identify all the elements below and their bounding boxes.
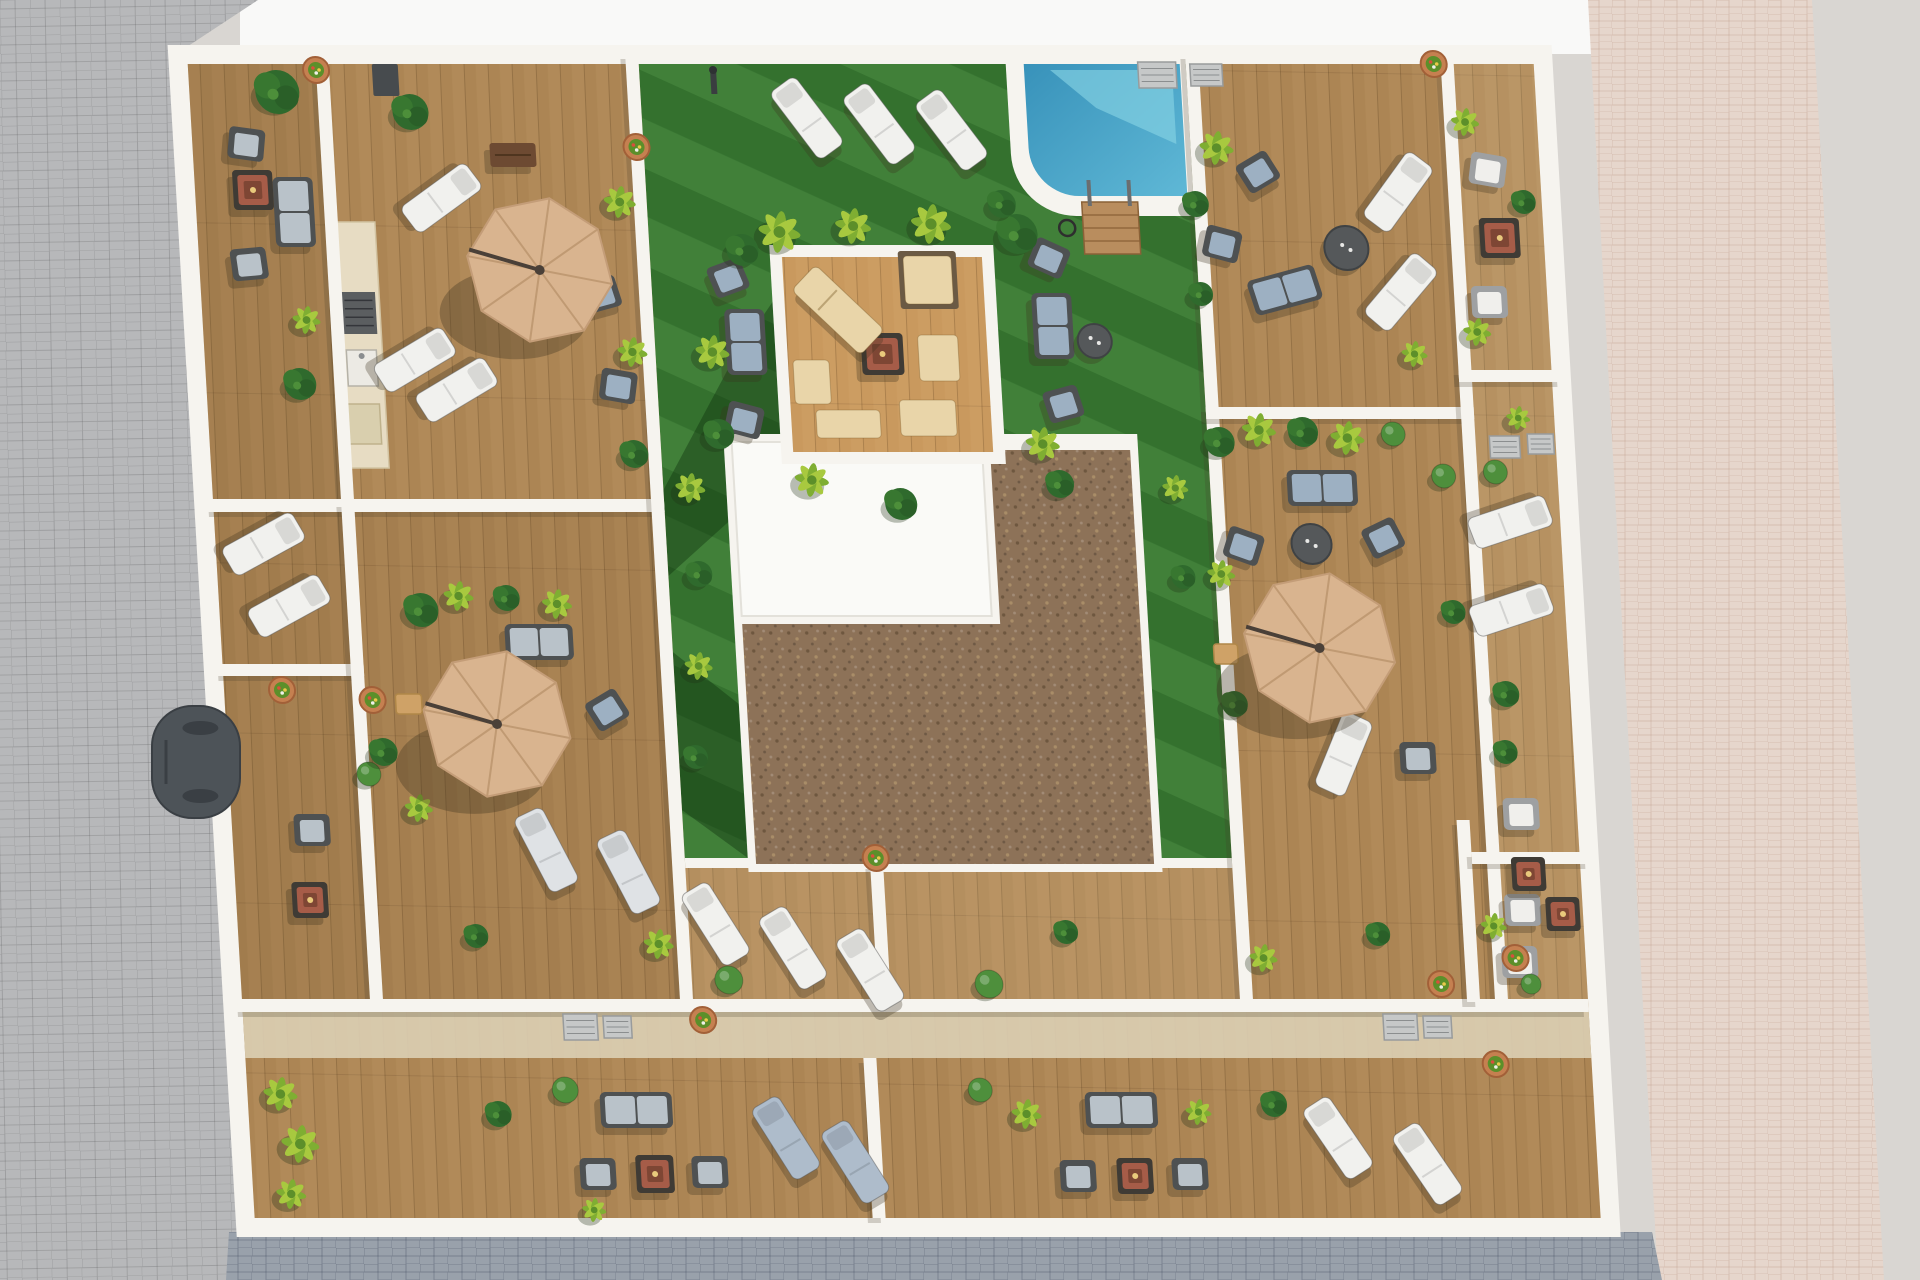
sofa <box>266 177 316 254</box>
armchair <box>1053 1160 1097 1199</box>
flower-planter <box>689 1007 717 1033</box>
armchair <box>1465 286 1509 325</box>
armchair <box>685 1156 729 1195</box>
flower-planter <box>1502 945 1530 971</box>
armchair <box>223 246 270 289</box>
terrace-wall <box>1201 407 1475 424</box>
fire-pit-table <box>1110 1158 1154 1201</box>
armchair <box>1165 1158 1209 1197</box>
ac-unit <box>1489 436 1520 458</box>
ac-unit <box>563 1014 599 1040</box>
flower-planter <box>1427 971 1455 997</box>
ac-unit <box>603 1016 632 1038</box>
stair-core <box>723 434 1162 872</box>
flower-planter <box>359 687 387 713</box>
building-roof-plate <box>170 51 1613 1230</box>
ac-unit <box>1527 434 1554 454</box>
bottom-street <box>226 1232 1662 1280</box>
wood-bench <box>483 143 537 174</box>
terrace-wall <box>196 499 665 517</box>
rooftop-aerial-render <box>0 0 1920 1280</box>
armchair <box>573 1158 617 1197</box>
ac-unit <box>1138 62 1178 88</box>
seat-cushion <box>917 335 960 381</box>
seat-cushion <box>816 410 882 438</box>
seat-cushion <box>898 251 959 309</box>
sofa <box>1078 1092 1158 1135</box>
side-table <box>395 694 422 714</box>
gravel-roof-main <box>742 624 1154 864</box>
flower-planter <box>623 134 651 160</box>
seat-cushion <box>793 360 832 404</box>
armchair <box>1496 798 1540 837</box>
flower-planter <box>1420 51 1448 77</box>
roof-box <box>372 64 400 96</box>
fire-pit-table <box>1539 897 1581 938</box>
fire-pit-table <box>629 1155 676 1200</box>
ac-unit <box>1383 1014 1419 1040</box>
armchair <box>287 814 331 853</box>
sofa <box>1025 293 1075 366</box>
flower-planter <box>1482 1051 1510 1077</box>
parked-car <box>152 706 240 818</box>
scene-canvas <box>0 0 1920 1280</box>
sofa <box>593 1092 673 1135</box>
ac-unit <box>1423 1016 1452 1038</box>
sofa <box>1280 470 1358 513</box>
flower-planter <box>268 677 296 703</box>
fire-pit-table <box>285 882 329 925</box>
fire-pit-table <box>1505 857 1547 898</box>
flower-planter <box>862 845 890 871</box>
fire-pit-table <box>1473 218 1522 265</box>
flat-white-roof <box>732 442 992 616</box>
flower-planter <box>302 57 330 83</box>
terrace-wall <box>1453 370 1564 387</box>
ac-unit <box>1190 64 1223 86</box>
armchair <box>1393 742 1437 781</box>
seat-cushion <box>899 400 957 436</box>
fire-pit-table <box>226 170 275 217</box>
